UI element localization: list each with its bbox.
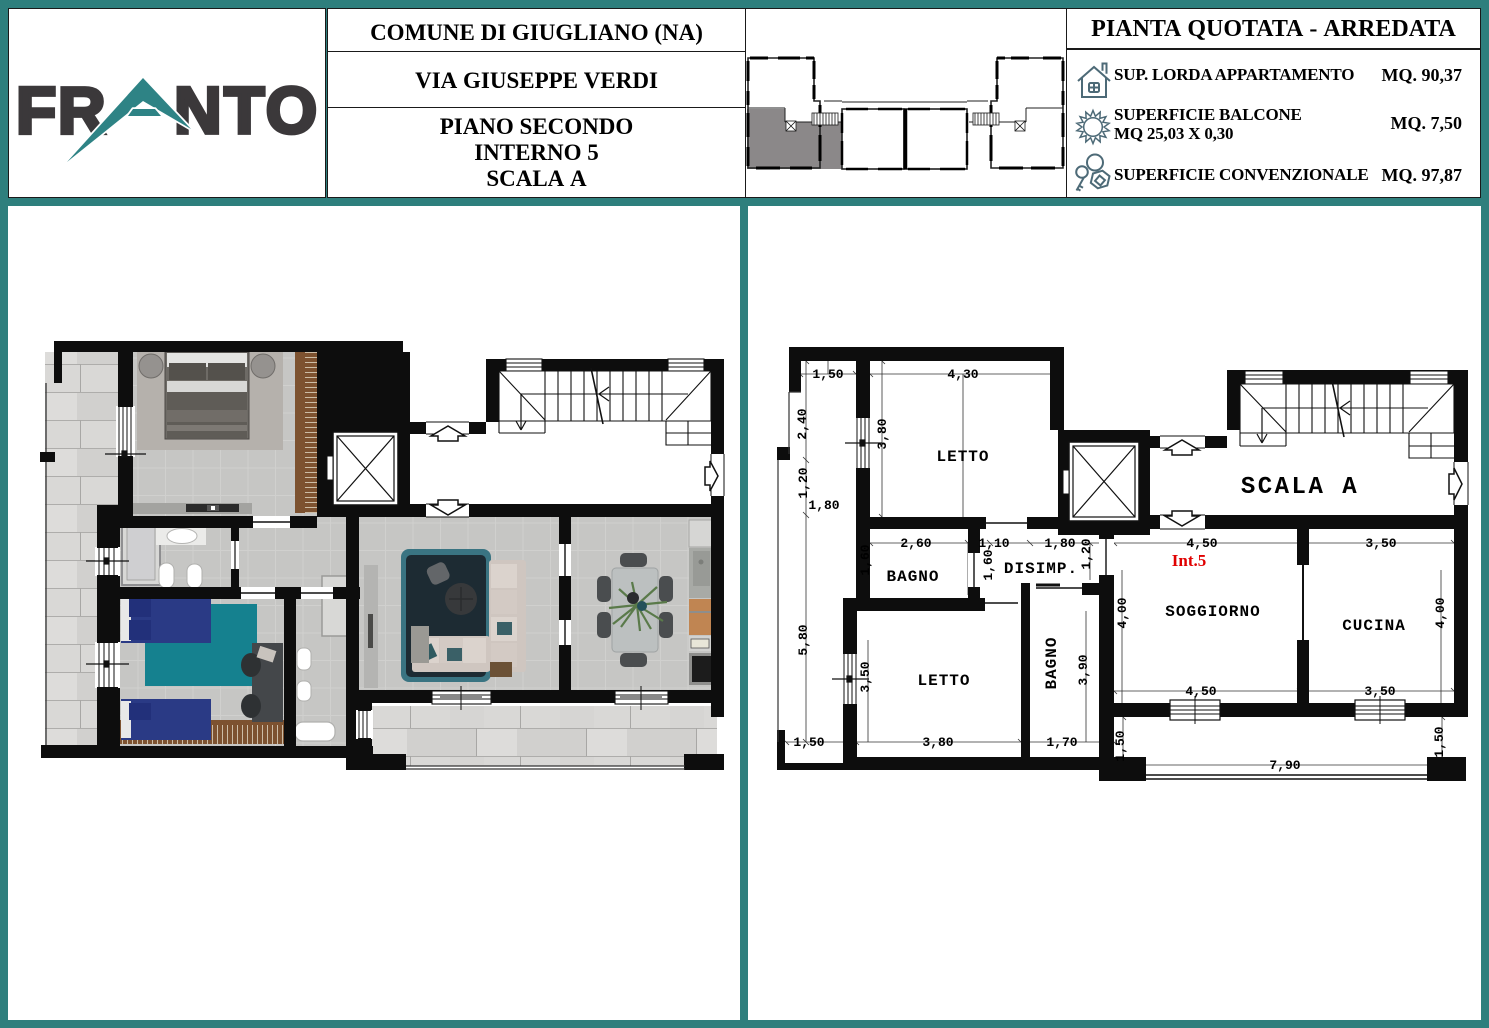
- svg-text:4,50: 4,50: [1186, 536, 1217, 551]
- svg-text:1,50: 1,50: [812, 367, 843, 382]
- svg-text:1,80: 1,80: [1044, 536, 1075, 551]
- svg-text:DISIMP.: DISIMP.: [1004, 560, 1078, 578]
- svg-text:1,50: 1,50: [1113, 730, 1128, 761]
- svg-text:4,00: 4,00: [1115, 597, 1130, 628]
- svg-text:3,90: 3,90: [1076, 654, 1091, 685]
- svg-text:1,60: 1,60: [981, 549, 996, 580]
- svg-text:2,60: 2,60: [900, 536, 931, 551]
- svg-text:3,50: 3,50: [1365, 536, 1396, 551]
- svg-text:1,70: 1,70: [1046, 735, 1077, 750]
- svg-text:4,30: 4,30: [947, 367, 978, 382]
- svg-text:LETTO: LETTO: [936, 448, 989, 466]
- svg-text:1,80: 1,80: [808, 498, 839, 513]
- svg-text:BAGNO: BAGNO: [1043, 636, 1061, 689]
- svg-text:7,90: 7,90: [1269, 758, 1300, 773]
- svg-text:5,80: 5,80: [796, 624, 811, 655]
- svg-text:1,50: 1,50: [793, 735, 824, 750]
- svg-text:3,80: 3,80: [875, 418, 890, 449]
- svg-text:1,50: 1,50: [1432, 726, 1447, 757]
- svg-text:Int.5: Int.5: [1172, 551, 1206, 570]
- svg-text:SCALA A: SCALA A: [1241, 474, 1359, 501]
- svg-text:CUCINA: CUCINA: [1342, 617, 1406, 635]
- svg-text:NTO: NTO: [174, 73, 320, 147]
- svg-text:3,50: 3,50: [1364, 684, 1395, 699]
- svg-text:1,60: 1,60: [858, 544, 873, 575]
- svg-text:1,10: 1,10: [978, 536, 1009, 551]
- svg-text:4,50: 4,50: [1185, 684, 1216, 699]
- svg-text:1,20: 1,20: [1079, 538, 1094, 569]
- svg-text:1,20: 1,20: [796, 467, 811, 498]
- svg-text:4,00: 4,00: [1433, 597, 1448, 628]
- svg-text:3,80: 3,80: [922, 735, 953, 750]
- svg-text:LETTO: LETTO: [917, 672, 970, 690]
- svg-text:2,40: 2,40: [795, 408, 810, 439]
- svg-text:SOGGIORNO: SOGGIORNO: [1165, 603, 1260, 621]
- svg-text:3,50: 3,50: [858, 661, 873, 692]
- svg-text:BAGNO: BAGNO: [886, 568, 939, 586]
